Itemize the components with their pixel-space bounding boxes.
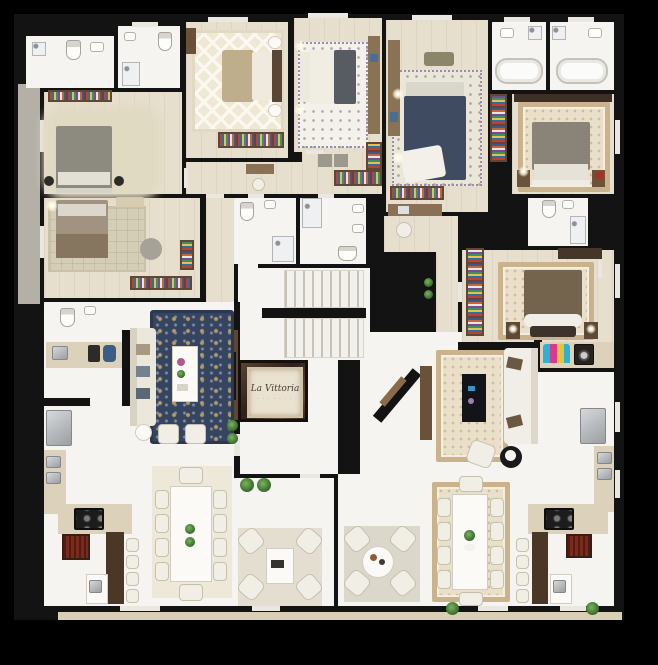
sofa-pillow-1: [136, 344, 150, 355]
window-west-2: [40, 226, 44, 258]
sink-bath-c: [264, 200, 276, 209]
hall-left-floor: [186, 162, 302, 194]
bedroom2-footboard: [56, 188, 112, 193]
window-top-4: [412, 15, 452, 20]
desk-right: [388, 204, 442, 216]
sink2-bath-d: [352, 224, 364, 233]
window-top-2: [208, 17, 248, 22]
stool-right-3: [516, 572, 529, 586]
laundry-right-shirts: [543, 344, 570, 363]
stairs-upper-flight: [284, 270, 364, 308]
corridor-left-floor: [206, 198, 234, 302]
cooktop-right: [544, 508, 574, 530]
toilet-bath-d: [338, 246, 357, 261]
window-east-1: [615, 120, 620, 154]
shower-bath-c: [272, 236, 294, 262]
corridor-plant-2: [424, 290, 433, 299]
window-east-4: [615, 470, 620, 498]
toilet-bath-c: [240, 202, 254, 221]
bedroom3-bookshelf-v: [180, 240, 194, 270]
bedroom4-lamp-glow-s: [294, 104, 306, 116]
dining-left-centerpiece-2: [185, 537, 195, 547]
dining-left-chair-w4: [155, 562, 169, 581]
shower-bath-a: [32, 42, 46, 56]
dining-right-chair-e1: [490, 498, 504, 517]
dining-left-chair-e1: [213, 490, 227, 509]
bedroomF-lamp-glow-w: [508, 324, 518, 334]
window-top-3: [308, 13, 348, 18]
window-top-5: [504, 17, 530, 22]
bedroom4-wardrobe: [368, 36, 380, 134]
island-right-sink: [553, 580, 566, 593]
coffee-table-flowers: [177, 358, 185, 366]
bedroomF-bookshelf: [466, 248, 484, 336]
sofa-pillow-3: [136, 388, 150, 399]
laundry-left-hamper: [103, 345, 116, 362]
corridor-bookshelf-h: [390, 186, 444, 200]
hall-bookshelf-h: [334, 170, 382, 186]
living-left-plant-1: [227, 420, 238, 431]
living-right-sofa-back: [531, 348, 538, 444]
terrace-left-plant-2: [257, 478, 271, 492]
dining-right-chair-w3: [437, 546, 451, 565]
bedroomF-pillows: [530, 326, 576, 337]
window-east-3: [615, 402, 620, 432]
dining-right-chair-head: [459, 476, 483, 492]
coffee-table-tray: [177, 384, 188, 391]
sink-bath-a: [90, 42, 104, 52]
master-bookshelf-v: [490, 94, 507, 162]
bedroom1-headboard: [272, 50, 282, 102]
master-lamp-glow-s: [392, 152, 404, 164]
stool-right-2: [516, 555, 529, 569]
hall-left-chair: [252, 178, 265, 191]
bath-right-a-tub: [495, 58, 543, 84]
bedroomE-lamp-glow: [518, 166, 529, 177]
dining-right-chair-w2: [437, 522, 451, 541]
dining-left-chair-e3: [213, 538, 227, 557]
window-west-1: [40, 120, 44, 152]
sink-service: [84, 306, 96, 315]
rail-gap-1: [120, 606, 160, 611]
coffee-table-decor-purple: [468, 398, 474, 404]
hall-desk-floor: [384, 216, 440, 252]
laundry-right-washer: [574, 344, 594, 365]
bedroom2-shelf: [48, 90, 112, 102]
rail-gap-3: [478, 606, 508, 611]
dining-right-chair-e2: [490, 522, 504, 541]
bedroom3-lamp-glow: [46, 200, 58, 212]
bath-right-b-sink: [588, 28, 602, 38]
terrace-plant-right: [586, 602, 599, 615]
bedroomE-duvet: [532, 122, 590, 170]
terrace-ledge: [58, 612, 622, 620]
master-wardrobe-item: [390, 112, 398, 122]
kitchen-left-sink2: [46, 472, 61, 484]
sink1-bath-d: [352, 204, 364, 213]
laundry-left-wall: [44, 398, 90, 406]
stool-left-2: [126, 555, 139, 569]
side-table-left: [135, 424, 152, 441]
wine-cabinet-right: [566, 534, 592, 558]
kitchen-left-sink1: [46, 456, 61, 468]
coffee-table-plant: [177, 370, 185, 378]
window-east-2: [615, 264, 620, 298]
dining-left-table: [170, 486, 212, 582]
bedroom2-speaker-w: [44, 176, 54, 186]
island-left-sink: [89, 580, 102, 593]
cooktop-left: [74, 508, 104, 530]
bedroom1-pillows: [252, 52, 272, 100]
side-table-lamp: [505, 450, 516, 461]
bedroom2-speaker-e: [114, 176, 124, 186]
kitchen-left-wall: [122, 330, 130, 406]
dining-left-chair-w3: [155, 538, 169, 557]
window-top-1: [132, 22, 158, 27]
terrace-right-cup-2: [379, 559, 385, 565]
bathE-sink: [562, 200, 574, 209]
stool-left-4: [126, 589, 139, 603]
hall-bookshelf-v: [366, 142, 382, 170]
floor-plan-scene: [0, 0, 658, 665]
dining-right-chair-e4: [490, 570, 504, 589]
rail-gap-4: [560, 606, 586, 611]
terrace-left-plant-1: [240, 478, 254, 492]
bar-right: [532, 532, 548, 604]
dining-left-chair-head: [179, 467, 203, 484]
coffee-table-black: [462, 374, 486, 422]
living-left-sofa-back: [130, 328, 137, 426]
stairs-landing: [262, 308, 366, 318]
fridge-right: [580, 408, 606, 444]
bedroom1-nightstand-s: [268, 104, 282, 117]
terrace-right-table: [362, 546, 394, 578]
coffee-table-left: [172, 346, 198, 402]
bath-right-b-tub: [556, 58, 608, 84]
toilet-bath-b: [158, 32, 172, 51]
door-bedroom3: [206, 194, 224, 198]
bedroom3-pouf: [140, 238, 162, 260]
west-balcony-ledge: [18, 84, 40, 304]
coffee-table-decor-teal: [468, 386, 475, 391]
toilet-service: [60, 308, 75, 327]
stool-right-4: [516, 589, 529, 603]
dining-left-centerpiece-1: [185, 524, 195, 534]
terrace-plant-left: [446, 602, 459, 615]
laundry-left-sink: [52, 346, 68, 360]
corridor-plant-1: [424, 278, 433, 287]
bedroomF-lamp-glow-e: [586, 324, 596, 334]
laundry-left-basket: [88, 345, 100, 362]
bedroom3-blanket: [56, 234, 108, 258]
hall-left-desk: [246, 164, 274, 174]
bedroom4-bench-b: [334, 154, 348, 167]
lobby-strip-floor: [238, 264, 258, 360]
rail-gap-2: [252, 606, 280, 611]
dining-right-table: [452, 494, 488, 590]
door-bedroomF-east: [598, 260, 602, 278]
dining-right-plate: [464, 544, 475, 551]
bedroom3-pillows: [58, 204, 106, 216]
bedroom4-mattress: [310, 50, 336, 104]
door-bedroomF: [458, 282, 462, 302]
stool-left-3: [126, 572, 139, 586]
armchair-left-2: [185, 424, 206, 444]
stairs-lower-flight: [284, 318, 364, 358]
dining-left-chair-e2: [213, 514, 227, 533]
bar-left: [106, 532, 124, 604]
elevator-plaque-subtitle: · · · · · · ·: [257, 396, 293, 401]
dining-right-chair-foot: [459, 592, 483, 606]
bedroom4-bench-a: [318, 154, 332, 167]
bedroom1-duvet: [222, 50, 254, 102]
sofa-pillow-2: [136, 366, 150, 377]
bedroomE-decor-red: [595, 172, 603, 179]
dining-left-chair-e4: [213, 562, 227, 581]
bedroomE-wardrobe-strip: [514, 94, 612, 102]
dining-right-centerpiece: [464, 530, 475, 541]
dining-left-chair-w2: [155, 514, 169, 533]
stool-left-1: [126, 538, 139, 552]
bedroomF-wardrobe: [558, 248, 602, 259]
bedroom3-bookshelf: [130, 276, 192, 290]
bedroom4-lamp-glow-n: [294, 40, 306, 52]
armchair-left-1: [158, 424, 179, 444]
bedroom1-nightstand-n: [268, 36, 282, 49]
sink-bath-b: [124, 32, 136, 41]
bedroomE-pillows: [534, 164, 588, 179]
living-left-plant-2: [227, 433, 238, 444]
dining-right-chair-w1: [437, 498, 451, 517]
kitchen-right-sink1: [597, 452, 612, 464]
desk-laptop: [398, 206, 409, 214]
bedroom4-duvet: [334, 50, 356, 104]
bath-right-a-shower: [528, 26, 542, 40]
toilet-bath-a: [66, 40, 81, 60]
dining-right-chair-w4: [437, 570, 451, 589]
shower-bath-b: [122, 62, 140, 86]
window-top-6: [568, 17, 594, 22]
dining-left-chair-foot: [179, 584, 203, 601]
terrace-right-cup-1: [370, 554, 377, 561]
bedroom2-pillows: [58, 172, 110, 185]
bathE-toilet: [542, 200, 556, 218]
door-bath-c: [248, 194, 264, 198]
master-lamp-glow-n: [392, 88, 404, 100]
bedroom1-cabinet: [186, 28, 196, 54]
elevator-plaque-brand: La Vittoria: [251, 384, 300, 394]
bedroom1-bookshelf: [218, 132, 284, 148]
bath-right-a-sink: [500, 28, 514, 38]
elevator-plaque: La Vittoria · · · · · · ·: [247, 367, 303, 418]
stool-right-1: [516, 538, 529, 552]
bathE-shower: [570, 216, 586, 244]
dining-left-chair-w1: [155, 490, 169, 509]
bedroom3-bench: [116, 197, 144, 207]
bath-right-b-shower: [552, 26, 566, 40]
floor-plan: La Vittoria · · · · · · ·: [0, 0, 658, 665]
master-bench: [424, 52, 454, 66]
wine-cabinet-left: [62, 534, 90, 560]
door-bedroom2: [184, 168, 188, 188]
door-terrace-left: [300, 474, 320, 478]
shower-bath-d: [302, 198, 322, 228]
fridge-left: [46, 410, 72, 446]
bedroom4-wardrobe-item: [370, 54, 378, 62]
dining-right-chair-e3: [490, 546, 504, 565]
terrace-left-tray: [271, 560, 284, 568]
bedroomE-footboard: [532, 180, 590, 186]
foyer-cabinet: [420, 366, 432, 440]
kitchen-right-sink2: [597, 468, 612, 480]
